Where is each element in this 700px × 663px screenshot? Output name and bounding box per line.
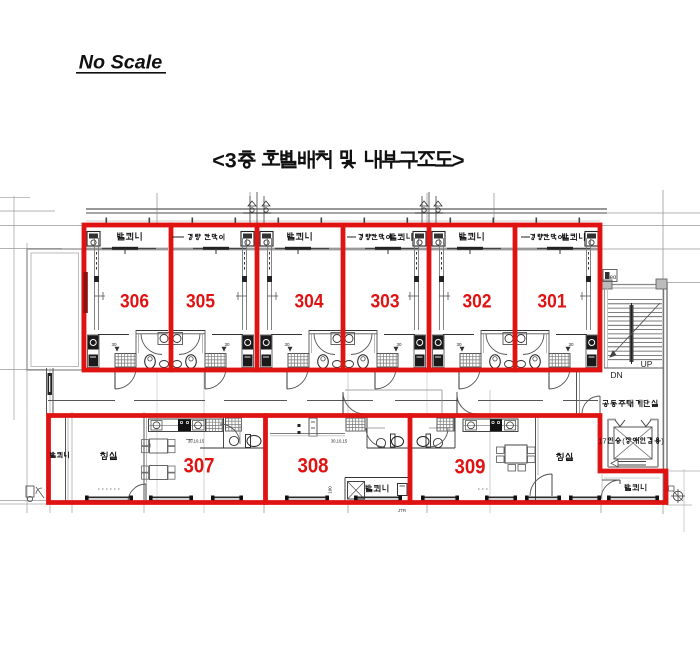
svg-text:DN: DN <box>610 370 622 380</box>
svg-text:307: 307 <box>184 455 215 478</box>
svg-text:306: 306 <box>120 291 149 313</box>
svg-text:30: 30 <box>568 342 574 347</box>
svg-text:eo: eo <box>610 275 617 281</box>
svg-text:30: 30 <box>396 342 402 347</box>
svg-text:30: 30 <box>456 342 462 347</box>
svg-text:305: 305 <box>186 291 215 313</box>
svg-text:30: 30 <box>111 342 117 347</box>
svg-text:30,10,15: 30,10,15 <box>331 439 348 444</box>
svg-text:>: > <box>452 149 465 173</box>
svg-text:<3: <3 <box>212 149 237 173</box>
svg-text:100: 100 <box>328 486 333 494</box>
svg-text:302: 302 <box>463 291 492 313</box>
svg-text:301: 301 <box>538 291 567 313</box>
svg-text:304: 304 <box>295 291 324 313</box>
svg-text:No Scale: No Scale <box>79 52 163 74</box>
svg-text:JTR: JTR <box>398 508 407 513</box>
svg-text:UP: UP <box>641 359 653 369</box>
svg-text:(: ( <box>622 437 625 446</box>
svg-text:309: 309 <box>455 456 486 479</box>
svg-text:303: 303 <box>371 291 400 313</box>
svg-text:308: 308 <box>298 455 329 478</box>
svg-text:30: 30 <box>224 342 230 347</box>
svg-text:30: 30 <box>284 342 290 347</box>
svg-text:17: 17 <box>598 437 606 446</box>
